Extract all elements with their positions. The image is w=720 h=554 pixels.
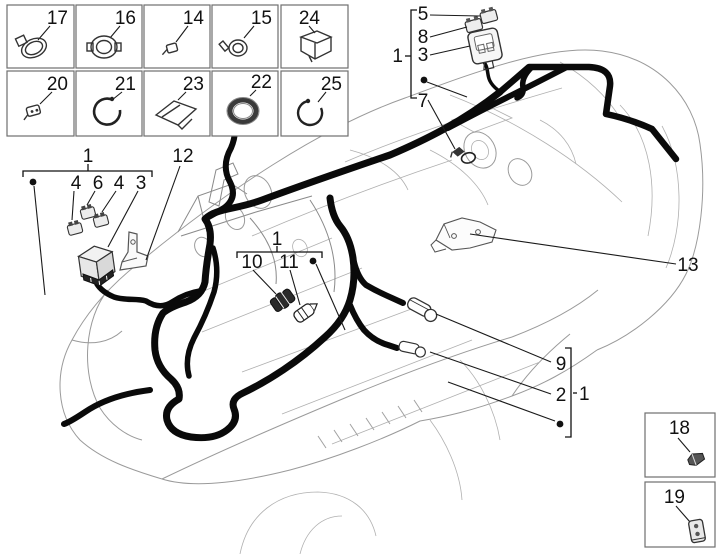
legend-box-19[interactable]: 19	[645, 482, 715, 547]
legend-box-24[interactable]: 24	[281, 5, 348, 68]
legend-box-21[interactable]: 21	[76, 71, 142, 136]
callout-3-topright: 3	[418, 45, 429, 66]
legend-box-22[interactable]: 22	[212, 71, 278, 136]
legend-num-17: 17	[47, 8, 68, 29]
callout-12: 12	[172, 146, 193, 167]
callout-11: 11	[279, 252, 299, 273]
legend-num-16: 16	[115, 8, 136, 29]
floor-hatching	[318, 400, 422, 448]
legend-num-21: 21	[115, 74, 136, 95]
legend-box-23[interactable]: 23	[144, 71, 210, 136]
legend-num-24: 24	[299, 8, 321, 29]
fuse-part-4a	[66, 219, 83, 235]
fuse-part-5	[479, 6, 498, 24]
callout-4a: 4	[71, 173, 82, 194]
legend-num-25: 25	[321, 74, 342, 95]
legend-grid: 17 16 14 15	[7, 5, 348, 136]
legend-num-18: 18	[669, 418, 690, 439]
callout-group-1-topright: 1	[392, 46, 403, 67]
callout-7: 7	[418, 91, 429, 112]
connector-icon	[688, 519, 706, 543]
legend-num-20: 20	[47, 74, 68, 95]
connector-part-11	[292, 299, 320, 324]
spark-cap-part-2	[398, 341, 427, 358]
callout-3-left: 3	[136, 173, 147, 194]
legend-box-17[interactable]: 17	[7, 5, 74, 68]
legend-num-14: 14	[183, 8, 205, 29]
callout-group-1-left: 1	[83, 146, 94, 167]
fuse-part-6	[79, 203, 96, 219]
legend-box-14[interactable]: 14	[144, 5, 210, 68]
legend-box-15[interactable]: 15	[212, 5, 278, 68]
legend-num-22: 22	[251, 72, 272, 93]
legend-num-19: 19	[664, 487, 685, 508]
callout-group-1-center: 1	[272, 229, 283, 250]
callout-5: 5	[418, 4, 429, 25]
legend-box-20[interactable]: 20	[7, 71, 74, 136]
callout-9: 9	[556, 354, 567, 375]
legend-box-18[interactable]: 18	[645, 413, 715, 477]
legend-num-23: 23	[183, 74, 204, 95]
callout-2: 2	[556, 385, 567, 406]
wiring-harness-diagram: 1 5 8 3 7 1 4 6 4 3 12 1 10 11 13 1 9 2 …	[0, 0, 720, 554]
callout-10: 10	[241, 252, 262, 273]
callout-4b: 4	[114, 173, 125, 194]
legend-box-16[interactable]: 16	[76, 5, 142, 68]
diagram-canvas: 1 5 8 3 7 1 4 6 4 3 12 1 10 11 13 1 9 2 …	[0, 0, 720, 554]
legend-box-25[interactable]: 25	[281, 71, 348, 136]
harness-ref-dot	[310, 258, 317, 265]
harness-ref-dot	[557, 421, 564, 428]
callout-group-1-right: 1	[579, 384, 590, 405]
harness-ref-dot	[30, 179, 37, 186]
legend-num-15: 15	[251, 8, 272, 29]
harness-ref-dot	[421, 77, 428, 84]
bracket-part-13	[431, 218, 496, 252]
relay-part	[77, 244, 116, 288]
callout-13: 13	[677, 255, 698, 276]
callout-6: 6	[93, 173, 104, 194]
bracket-part-12	[120, 232, 148, 270]
